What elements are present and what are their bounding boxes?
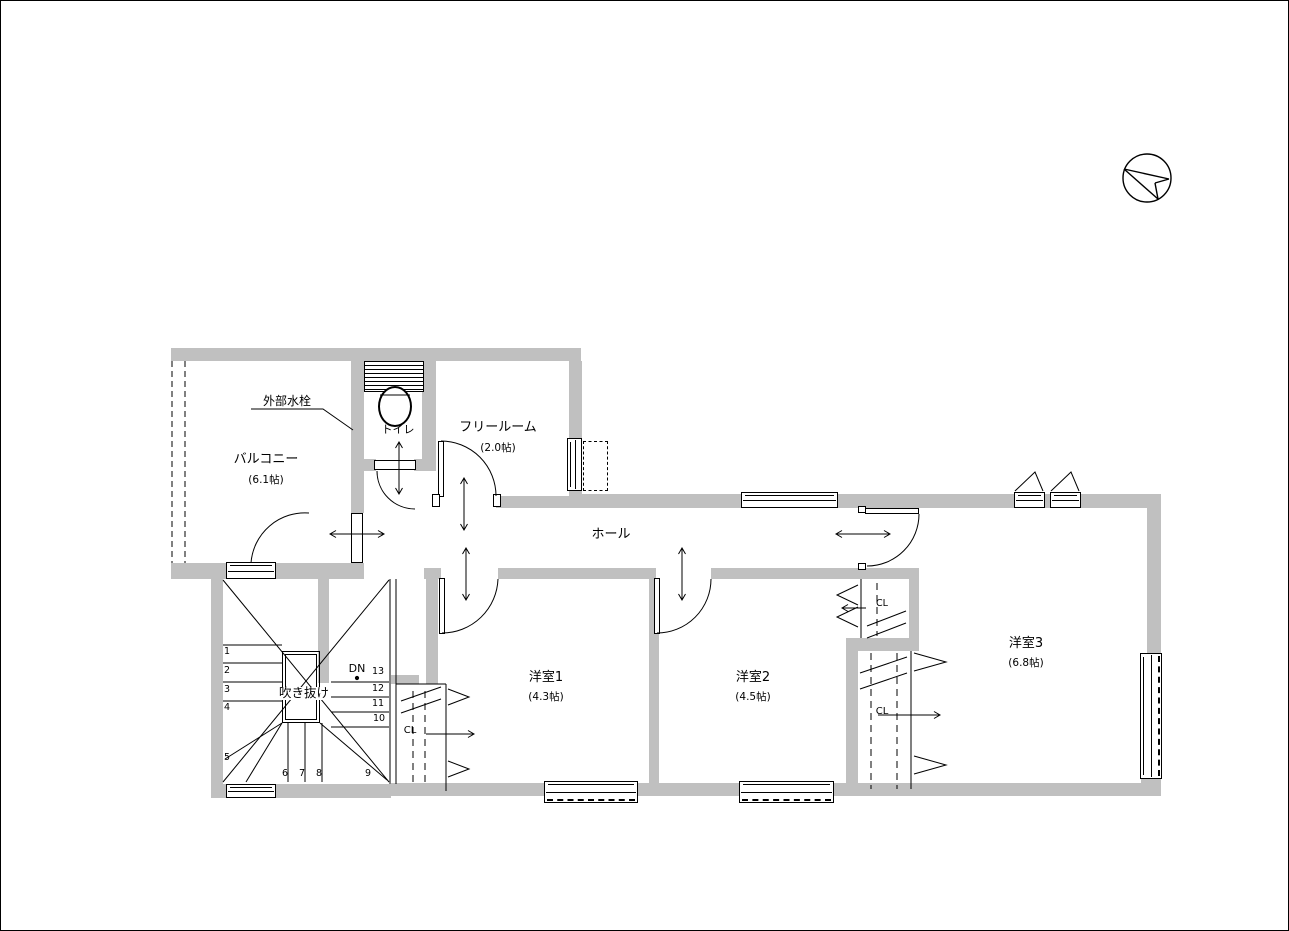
shutter-dashes [1158, 656, 1160, 776]
wall-segment [171, 348, 581, 361]
wall-segment [569, 361, 582, 438]
window-balcony [226, 562, 276, 579]
door-leaf-toilet [374, 460, 416, 470]
window-casement-2 [1050, 492, 1081, 508]
stair-step-number: 6 [282, 769, 288, 779]
stair-step-number: 9 [365, 769, 371, 779]
room-label-toilet: トイレ [382, 424, 415, 435]
north-arrow-icon [1123, 154, 1171, 202]
door-leaf-room1 [439, 578, 445, 634]
casement-flag [1051, 472, 1079, 491]
door-arc-room2 [657, 579, 711, 633]
room-label-room2: 洋室2 [736, 671, 770, 684]
room-area-room1: (4.3帖) [528, 692, 563, 703]
door-leaf-freeroom [438, 441, 444, 497]
stair-step-number: 2 [224, 666, 230, 676]
window-room3-east [1140, 653, 1162, 779]
casement-flag [1015, 472, 1043, 491]
label-dn: DN [349, 663, 366, 674]
room-label-freeroom: フリールーム [459, 421, 537, 434]
toilet-fixture [378, 386, 412, 427]
window-casement-1 [1014, 492, 1045, 508]
wall-segment [211, 563, 223, 798]
stair-step-number: 8 [316, 769, 322, 779]
shutter-dashes [547, 799, 635, 801]
door-opening-room1 [441, 568, 498, 579]
room-area-room2: (4.5帖) [735, 692, 770, 703]
bifold-door [448, 689, 469, 705]
door-arc-room1 [442, 579, 498, 633]
bifold-door [448, 761, 469, 777]
door-arc-room3 [867, 514, 919, 566]
label-closet-room3: CL [876, 707, 889, 717]
door-leaf-room3 [865, 508, 919, 514]
stair-step-number: 3 [224, 685, 230, 695]
shutter-dashes [742, 799, 831, 801]
stair-step-number: 10 [373, 714, 385, 724]
shutter-box-freeroom [583, 441, 608, 491]
door-post [858, 506, 866, 513]
label-exterior-faucet: 外部水栓 [263, 395, 311, 407]
bifold-door [837, 585, 858, 605]
room-area-room3: (6.8帖) [1008, 658, 1043, 669]
wall-segment [351, 361, 364, 513]
room-label-void: 吹き抜け [277, 687, 331, 700]
room-label-room3: 洋室3 [1009, 637, 1043, 650]
room-area-freeroom: (2.0帖) [480, 443, 515, 454]
door-leaf-balcony [351, 513, 363, 563]
bifold-door [914, 653, 946, 671]
room-label-room1: 洋室1 [529, 671, 563, 684]
window-room1-south [544, 781, 638, 803]
stair-step-number: 4 [224, 703, 230, 713]
door-arc-toilet [377, 471, 415, 509]
room-area-balcony: (6.1帖) [248, 475, 283, 486]
stair-step-number: 1 [224, 647, 230, 657]
faucet-leader [251, 409, 353, 430]
wall-segment [414, 459, 436, 471]
stair-step-number: 13 [372, 667, 384, 677]
stair-step-number: 7 [299, 769, 305, 779]
door-arc-balcony [251, 513, 309, 563]
window-hall [741, 492, 838, 508]
door-post [858, 563, 866, 570]
bifold-door [837, 607, 858, 627]
wall-segment [1147, 494, 1161, 654]
window-freeroom [567, 438, 582, 491]
stair-step-number: 5 [224, 753, 230, 763]
door-post [493, 494, 501, 507]
wall-segment [846, 651, 858, 791]
bifold-door [914, 756, 946, 774]
label-closet-room2: CL [876, 599, 888, 609]
door-opening-room2 [656, 568, 711, 579]
door-leaf-room2 [654, 578, 660, 634]
stair-step-number: 12 [372, 684, 384, 694]
floor-plan: 外部水栓 バルコニー (6.1帖) トイレ フリールーム (2.0帖) ホール … [0, 0, 1289, 931]
wall-segment [846, 638, 919, 651]
door-post [432, 494, 440, 507]
wall-segment [391, 675, 419, 684]
room-label-balcony: バルコニー [234, 453, 299, 466]
wall-segment [422, 361, 436, 466]
window-stairwell [226, 784, 276, 798]
wall-segment [426, 568, 438, 684]
window-room2-south [739, 781, 834, 803]
stair-step-number: 11 [372, 699, 384, 709]
room-label-hall: ホール [591, 528, 630, 541]
label-closet-room1: CL [404, 726, 417, 736]
